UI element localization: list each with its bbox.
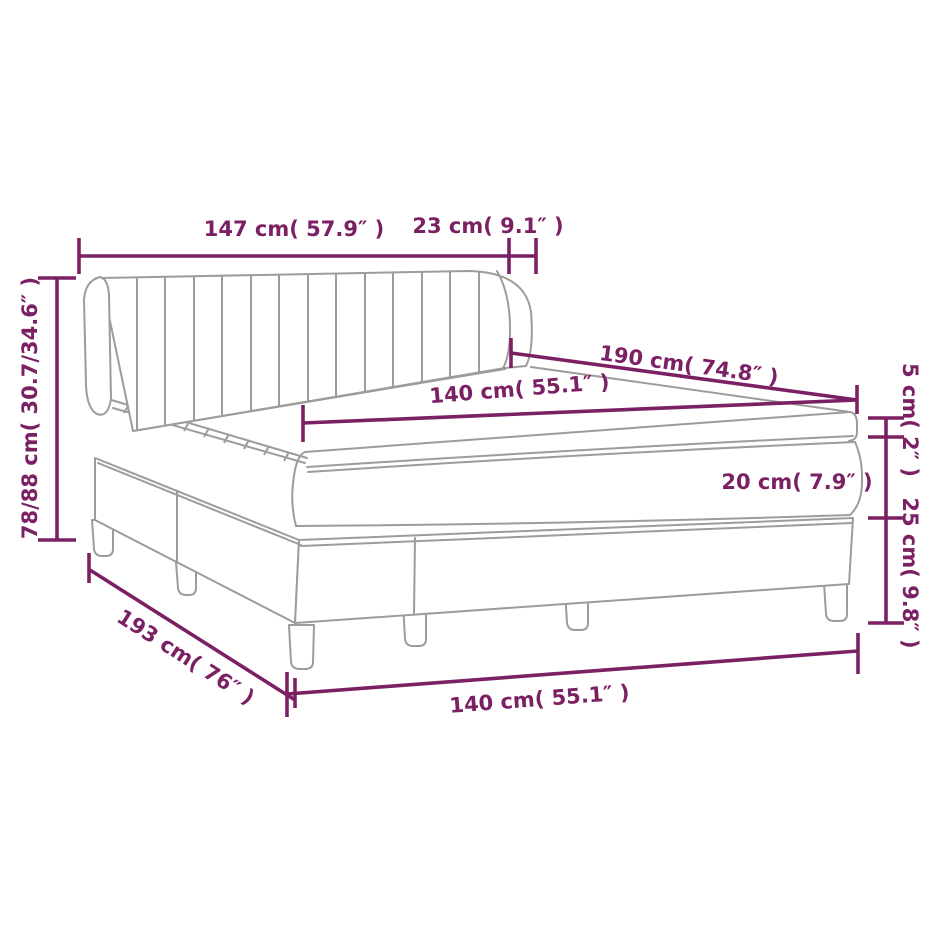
dim-headboard-height xyxy=(38,278,76,540)
leg-front-right xyxy=(824,583,847,621)
label-headboard-width: 147 cm( 57.9″ ) xyxy=(204,217,385,241)
label-total-length: 193 cm( 76″ ) xyxy=(113,605,259,710)
bed-dimension-drawing: 147 cm( 57.9″ ) 23 cm( 9.1″ ) 78/88 cm( … xyxy=(0,0,947,947)
dim-headboard-depth xyxy=(509,238,536,274)
label-base-height: 25 cm( 9.8″ ) xyxy=(898,497,922,648)
label-base-width: 140 cm( 55.1″ ) xyxy=(449,680,631,718)
label-headboard-height: 78/88 cm( 30.7/34.6″ ) xyxy=(18,277,42,539)
label-headboard-depth: 23 cm( 9.1″ ) xyxy=(412,214,563,238)
base-front-seam xyxy=(414,538,415,614)
dim-headboard-width xyxy=(79,238,509,274)
label-mattress-thickness: 20 cm( 7.9″ ) xyxy=(721,470,872,494)
headboard-left-roll xyxy=(84,277,111,415)
leg-front-left xyxy=(289,625,314,669)
base-left-face xyxy=(95,458,299,623)
label-topper-thickness: 5 cm( 2″ ) xyxy=(898,363,922,477)
dimension-diagram: 147 cm( 57.9″ ) 23 cm( 9.1″ ) 78/88 cm( … xyxy=(0,0,947,947)
